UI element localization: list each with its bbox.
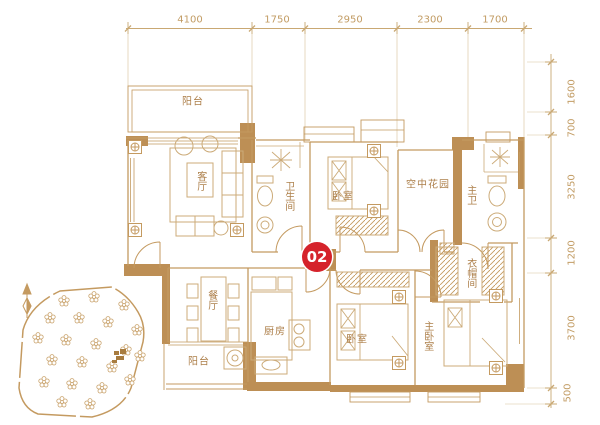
living-room-furniture: [170, 136, 243, 236]
room-label-kitchen: 厨房: [264, 326, 286, 338]
dimension-right-4: 1200: [567, 240, 578, 265]
room-label-bedroom-top: 卧室: [332, 191, 354, 203]
dimension-top-4: 2300: [417, 15, 442, 26]
room-label-master-bedroom: 主卧室: [421, 321, 433, 351]
furniture: [170, 136, 518, 374]
dimension-top-3: 2950: [337, 15, 362, 26]
dimension-lines-top: [125, 22, 532, 147]
room-label-cloakroom: 衣帽间: [464, 258, 476, 288]
room-label-master-bath: 主卫: [464, 185, 476, 205]
garden-shrub-icon: [112, 349, 126, 363]
bedroom-bottom-furniture: [337, 272, 409, 360]
master-bedroom-furniture: [444, 300, 507, 366]
room-label-balcony-bottom: 阳台: [188, 356, 210, 368]
garden-area: [19, 287, 145, 417]
dimension-top-1: 4100: [177, 15, 202, 26]
dimension-right-5: 3700: [567, 315, 578, 340]
room-label-bedroom-bottom: 卧室: [346, 334, 368, 346]
dimension-top-2: 1750: [264, 15, 289, 26]
room-label-living-room: 客厅: [194, 171, 206, 191]
north-arrow-icon: [23, 284, 31, 318]
unit-number-badge: 02: [302, 242, 332, 272]
dimension-top-5: 1700: [482, 15, 507, 26]
floor-plan-page: 阳台 客厅 卫生间 卧室 空中花园 主卫 餐厅 厨房 阳台 卧室 主卧室 衣帽间…: [0, 0, 600, 425]
balcony-washer: [224, 347, 246, 369]
floor-plan-drawing: [0, 0, 600, 425]
master-bath-fixtures: [484, 144, 518, 231]
dimension-right-6: 500: [563, 383, 574, 402]
room-label-bathroom: 卫生间: [282, 181, 294, 211]
dimension-right-2: 700: [567, 118, 578, 137]
dimension-right-3: 3250: [567, 174, 578, 199]
garden-flowers: [33, 292, 145, 409]
room-label-dining-room: 餐厅: [205, 290, 217, 310]
bathroom-fixtures: [256, 142, 304, 233]
dimension-lines-right: [505, 54, 557, 408]
dimension-right-1: 1600: [567, 79, 578, 104]
room-label-balcony-top: 阳台: [182, 96, 204, 108]
room-label-sky-garden: 空中花园: [406, 179, 450, 191]
